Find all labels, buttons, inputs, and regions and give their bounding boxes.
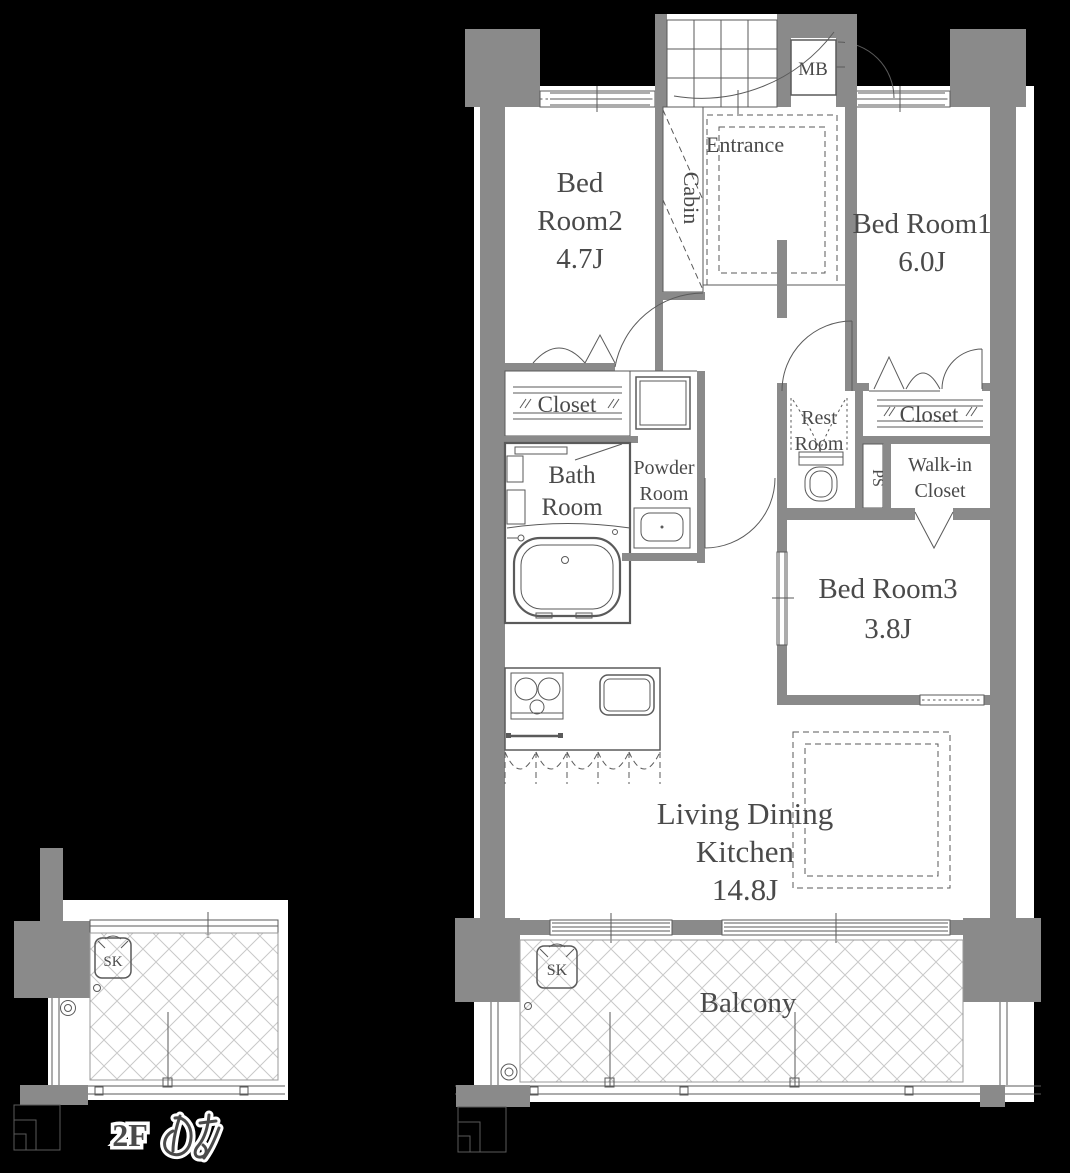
floor-plan-drawing: MB Cabin Entrance Bed Room2 — [0, 0, 1070, 1173]
floor-plan-page: MB Cabin Entrance Bed Room2 — [0, 0, 1070, 1173]
bed2-name-line1: Bed — [557, 167, 604, 199]
wall-ps-right — [883, 444, 891, 508]
bed3-size: 3.8J — [864, 613, 912, 645]
wall-corridor-left — [697, 371, 705, 563]
closet-bed1-label: Closet — [900, 402, 959, 427]
entrance-label: Entrance — [706, 132, 784, 157]
entrance-wall-left — [655, 14, 667, 107]
column-top-right — [950, 29, 1026, 107]
main-unit: MB Cabin Entrance Bed Room2 — [455, 14, 1041, 1152]
mb-wall-top — [789, 14, 838, 38]
wall-closet-bed1-bottom — [855, 436, 990, 444]
annex-column — [14, 921, 90, 998]
closet-bed2-label: Closet — [538, 392, 597, 417]
ldk-label-line2: Kitchen — [696, 834, 795, 869]
bed1-size: 6.0J — [898, 246, 946, 278]
annex-balcony: SK 2F — [14, 848, 288, 1158]
rest-label-line1: Rest — [801, 407, 837, 429]
balcony-label: Balcony — [700, 987, 797, 1019]
wic-label-line1: Walk-in — [908, 454, 972, 476]
bath-label-line1: Bath — [548, 462, 596, 489]
powder-label-line1: Powder — [633, 457, 694, 479]
sk-annex-label: SK — [103, 954, 122, 970]
annex-note: 2F — [112, 1115, 219, 1158]
ldk-size: 14.8J — [712, 872, 778, 907]
entrance-wall-mid — [777, 14, 791, 107]
wall-rest-right — [855, 391, 863, 508]
annex-note-kana-no — [165, 1116, 192, 1155]
mb-label: MB — [798, 59, 828, 80]
wall-left — [480, 91, 505, 920]
unit-corner-steps — [456, 1085, 530, 1152]
bed2-size: 4.7J — [556, 243, 604, 275]
column-top-left — [465, 29, 540, 107]
wall-bed2-cabin — [655, 107, 663, 363]
powder-label-line2: Room — [640, 483, 689, 505]
wic-label-line2: Closet — [914, 480, 966, 502]
sk-main-label: SK — [547, 962, 568, 979]
cabin-label: Cabin — [679, 172, 704, 225]
bath-label-line2: Room — [541, 494, 603, 521]
bed2-name-line2: Room2 — [537, 205, 622, 237]
balcony: SK Balcony — [455, 940, 1041, 1152]
wall-wic-bottom — [777, 508, 990, 520]
wall-corridor-pier — [777, 240, 787, 318]
bed1-name: Bed Room1 — [852, 208, 991, 240]
wall-corridor-right — [777, 391, 787, 508]
annex-wall-top — [40, 848, 63, 921]
bed3-name: Bed Room3 — [818, 573, 957, 605]
wall-powder-bottom — [622, 553, 705, 561]
annex-corner-steps — [14, 1085, 88, 1150]
wall-right — [990, 91, 1016, 920]
ldk-label-line1: Living Dining — [657, 796, 834, 831]
annex-note-prefix: 2F — [112, 1117, 148, 1153]
annex-note-kana-mi — [195, 1115, 219, 1158]
wall-bed1-left — [845, 14, 857, 391]
